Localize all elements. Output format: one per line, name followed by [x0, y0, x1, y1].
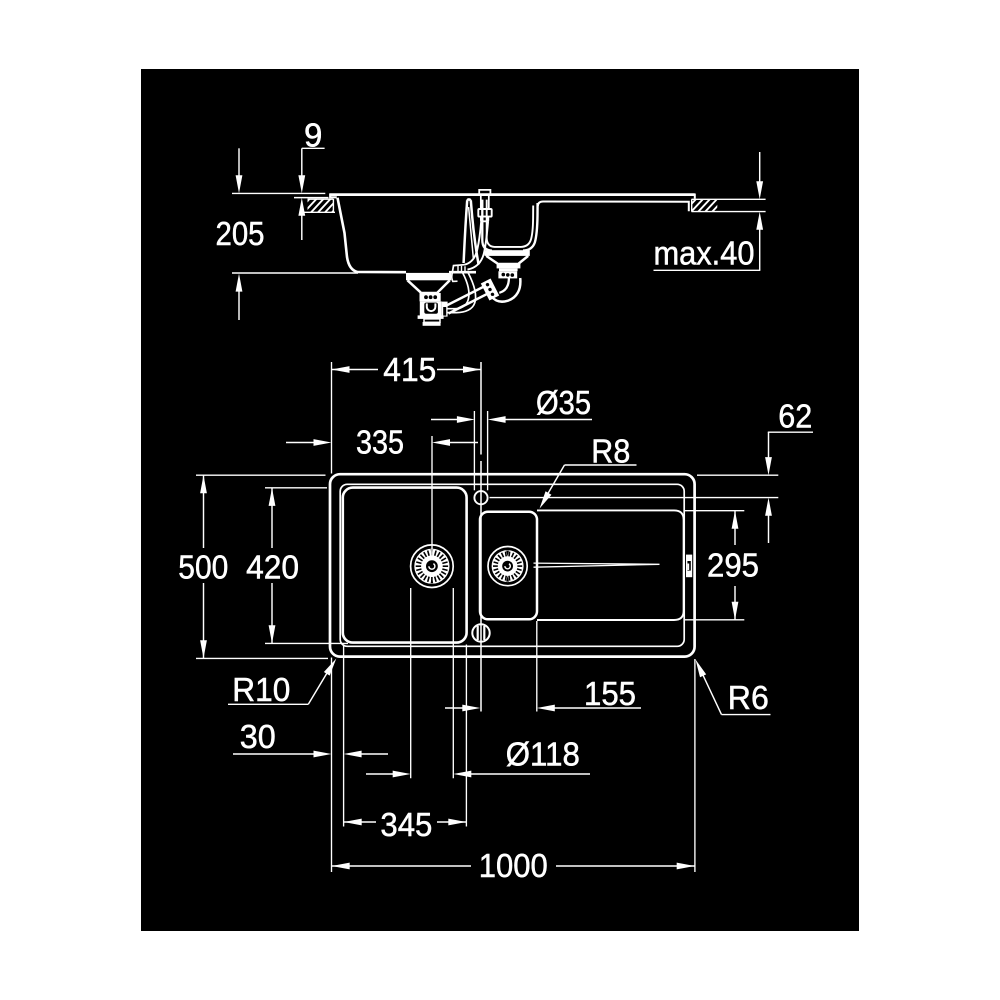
svg-text:500: 500	[178, 548, 228, 585]
svg-text:Ø35: Ø35	[536, 384, 591, 421]
svg-text:205: 205	[216, 215, 265, 252]
svg-text:1000: 1000	[479, 847, 548, 884]
svg-text:295: 295	[707, 547, 759, 584]
svg-text:R8: R8	[591, 433, 630, 470]
svg-text:420: 420	[246, 548, 299, 585]
svg-text:Ø118: Ø118	[506, 735, 580, 772]
svg-text:max.40: max.40	[654, 234, 755, 271]
svg-text:30: 30	[240, 718, 276, 755]
svg-text:415: 415	[383, 351, 436, 388]
svg-text:155: 155	[584, 675, 636, 712]
svg-text:345: 345	[380, 806, 432, 843]
svg-text:335: 335	[356, 423, 404, 460]
svg-text:62: 62	[778, 397, 812, 434]
svg-text:R10: R10	[232, 671, 290, 708]
svg-text:R6: R6	[728, 679, 769, 716]
